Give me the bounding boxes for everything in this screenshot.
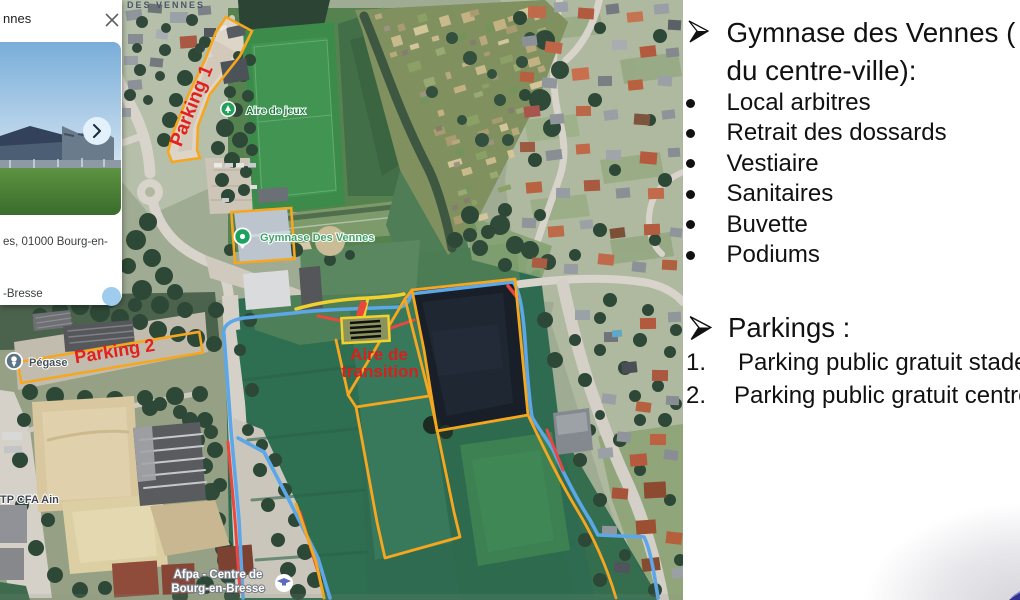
- svg-text:Pégase: Pégase: [29, 357, 68, 369]
- svg-text:Aire de jeux: Aire de jeux: [246, 105, 306, 117]
- svg-text:DES VENNES: DES VENNES: [127, 0, 205, 10]
- svg-text:Gymnase Des Vennes: Gymnase Des Vennes: [260, 232, 374, 244]
- svg-text:transition: transition: [341, 362, 418, 381]
- svg-text:TP CFA Ain: TP CFA Ain: [0, 494, 59, 506]
- svg-text:Bourg-en-Bresse: Bourg-en-Bresse: [171, 583, 264, 595]
- svg-text:Afpa - Centre de: Afpa - Centre de: [174, 569, 263, 581]
